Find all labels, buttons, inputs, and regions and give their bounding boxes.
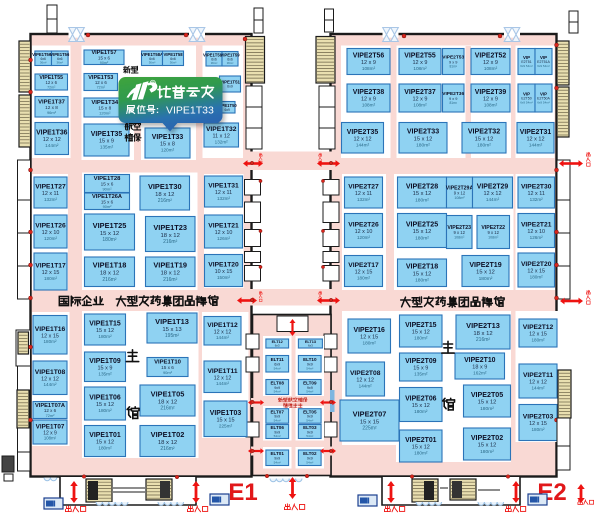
svg-text:VIPE1T01: VIPE1T01 [89,432,121,439]
svg-text:15 x 12: 15 x 12 [100,231,119,237]
svg-text:9 x 12: 9 x 12 [453,230,465,235]
svg-text:VIPE2T32: VIPE2T32 [468,128,500,136]
svg-text:15 x 12: 15 x 12 [478,443,497,449]
svg-text:15 x 12: 15 x 12 [413,229,432,235]
svg-text:VIPE1T33: VIPE1T33 [166,105,214,117]
svg-text:15 x 13: 15 x 13 [162,327,182,333]
svg-text:180m²: 180m² [363,341,377,346]
svg-text:15 x 15: 15 x 15 [360,419,380,425]
svg-text:ELT05: ELT05 [303,409,317,414]
svg-text:120m²: 120m² [44,236,57,241]
svg-text:96m²: 96m² [47,110,57,115]
svg-text:VIPE1T03: VIPE1T03 [210,410,242,417]
svg-text:180m²: 180m² [530,274,543,279]
svg-text:15 x 12: 15 x 12 [413,272,432,278]
svg-text:180m²: 180m² [479,276,493,282]
svg-text:VIPE1T15: VIPE1T15 [89,321,121,328]
svg-text:VIPE2T37: VIPE2T37 [404,89,436,96]
svg-text:VIPE1T27: VIPE1T27 [35,184,66,191]
svg-text:VIPE2T16: VIPE2T16 [353,327,385,334]
svg-text:VIPE2T31: VIPE2T31 [520,129,552,136]
svg-text:6x9 54m²: 6x9 54m² [520,64,533,68]
svg-text:108m²: 108m² [413,66,427,71]
svg-text:108m²: 108m² [488,236,499,240]
svg-text:150m²: 150m² [217,275,230,280]
svg-text:132m²: 132m² [217,196,230,201]
svg-text:72m²: 72m² [46,413,56,418]
svg-text:VIPE2T15: VIPE2T15 [405,322,437,329]
svg-text:54m²: 54m² [274,460,281,464]
svg-text:144m²: 144m² [356,142,370,147]
svg-text:216m²: 216m² [158,198,173,204]
svg-text:180m²: 180m² [102,237,117,243]
svg-text:144m²: 144m² [486,197,500,202]
svg-text:162m²: 162m² [473,371,487,376]
svg-text:54m²: 54m² [274,366,281,370]
svg-text:ELT03: ELT03 [303,425,317,430]
svg-text:54m²: 54m² [274,419,281,423]
svg-text:120m²: 120m² [99,111,111,116]
svg-text:VIPE1T13: VIPE1T13 [155,317,189,326]
svg-text:135m²: 135m² [414,372,428,377]
svg-text:VIPE1T20: VIPE1T20 [208,262,239,269]
svg-text:12 x 6: 12 x 6 [45,80,57,85]
svg-text:108m²: 108m² [484,103,498,108]
svg-text:15 x 12: 15 x 12 [476,270,495,276]
svg-text:ELT11: ELT11 [271,357,285,362]
svg-text:180m²: 180m² [98,446,112,451]
svg-text:54m²: 54m² [306,390,313,394]
svg-text:18 x 12: 18 x 12 [161,233,180,239]
svg-text:VIPE1T05: VIPE1T05 [151,389,185,398]
svg-text:180m²: 180m² [415,278,429,284]
svg-text:180m²: 180m² [414,336,428,341]
svg-text:VIPE1T09: VIPE1T09 [89,358,121,365]
svg-text:VIPE2T17: VIPE2T17 [348,262,379,269]
svg-text:VIPE1T11: VIPE1T11 [207,368,237,375]
svg-text:VIPE1T19: VIPE1T19 [153,261,187,270]
svg-text:VIPE2T13: VIPE2T13 [466,321,500,330]
svg-text:36m²: 36m² [170,60,177,64]
svg-text:120m²: 120m² [357,235,370,240]
svg-text:90m²: 90m² [103,204,113,209]
svg-text:132m²: 132m² [44,197,57,202]
svg-text:15 x 12: 15 x 12 [414,137,433,143]
svg-text:6x9 54m²: 6x9 54m² [520,100,533,104]
svg-text:180m²: 180m² [44,276,57,281]
svg-text:6x9: 6x9 [224,108,230,112]
svg-text:132m²: 132m² [530,197,543,202]
svg-text:135m²: 135m² [98,371,112,376]
svg-text:90m²: 90m² [102,187,112,192]
svg-text:180m²: 180m² [98,334,112,339]
svg-text:ELT08: ELT08 [270,380,284,385]
svg-text:VIPE2T01: VIPE2T01 [405,437,437,444]
svg-text:108m²: 108m² [362,66,376,71]
svg-text:VIPE1T18: VIPE1T18 [93,261,127,270]
svg-text:6x3: 6x3 [275,344,280,348]
svg-text:6x9: 6x9 [227,85,233,89]
svg-text:180m²: 180m² [414,409,428,414]
svg-text:15 x 12: 15 x 12 [475,137,494,143]
svg-text:6x9 54m²: 6x9 54m² [537,64,550,68]
svg-text:VIPE1T25: VIPE1T25 [93,221,127,230]
svg-text:VIPE2T56: VIPE2T56 [353,53,385,60]
svg-text:180m²: 180m² [531,427,544,432]
svg-text:E1: E1 [228,479,257,506]
svg-text:180m²: 180m² [357,275,370,280]
svg-text:72m²: 72m² [97,86,106,90]
svg-text:VIPE2T11: VIPE2T11 [523,372,553,379]
svg-text:VIPE1T16: VIPE1T16 [35,326,66,333]
svg-text:180m²: 180m² [416,143,430,149]
svg-text:135m²: 135m² [100,145,114,150]
svg-text:VIPE1T12: VIPE1T12 [207,322,238,329]
svg-text:VIPE2T25: VIPE2T25 [406,220,438,228]
svg-text:180m²: 180m² [98,408,112,413]
svg-text:VIPE1T32: VIPE1T32 [206,126,237,133]
svg-text:VIPE2T30: VIPE2T30 [521,184,552,191]
svg-text:54m²: 54m² [306,419,313,423]
svg-text:18 x 12: 18 x 12 [473,331,492,337]
svg-text:18 x 12: 18 x 12 [100,271,119,277]
svg-text:VIPE2T09: VIPE2T09 [405,358,437,365]
svg-text:120m²: 120m² [161,148,175,153]
svg-text:VIPE2T28: VIPE2T28 [406,182,438,190]
svg-text:VIPE2T21: VIPE2T21 [521,222,552,229]
svg-text:216m²: 216m² [160,446,175,452]
svg-text:VIPE2T55: VIPE2T55 [404,53,436,60]
svg-text:144m²: 144m² [45,143,59,148]
svg-text:VIPE2T06: VIPE2T06 [405,396,437,403]
svg-text:VIPE1T23: VIPE1T23 [153,223,187,232]
svg-text:VIPE2T39: VIPE2T39 [475,89,507,96]
svg-text:VIPE2T38: VIPE2T38 [353,89,385,96]
svg-text:VIPE1T07: VIPE1T07 [36,423,65,430]
svg-text:18 x 12: 18 x 12 [158,440,177,446]
svg-text:36m²: 36m² [149,60,156,64]
svg-text:VIPE2T08: VIPE2T08 [350,370,381,377]
svg-text:VIPE1T35: VIPE1T35 [91,131,123,138]
svg-text:144m²: 144m² [529,142,543,147]
svg-text:216m²: 216m² [476,337,491,343]
svg-text:15 x 12: 15 x 12 [478,400,497,406]
svg-text:VIPE2T33: VIPE2T33 [407,128,439,136]
svg-text:VIPE1T08: VIPE1T08 [35,369,66,376]
svg-text:VIPE1T17: VIPE1T17 [35,263,66,270]
svg-text:12 x 6: 12 x 6 [95,80,108,85]
svg-text:90m²: 90m² [163,370,173,375]
svg-text:ELT07: ELT07 [270,409,284,414]
svg-text:VIPE1T36: VIPE1T36 [36,130,68,137]
svg-text:VIPE2T35: VIPE2T35 [347,129,379,136]
svg-text:VIPE2T03: VIPE2T03 [523,414,554,421]
svg-text:VIPE2T26: VIPE2T26 [348,222,379,229]
svg-text:VIPE2T12: VIPE2T12 [523,324,554,331]
svg-text:180m²: 180m² [477,143,491,149]
svg-text:180m²: 180m² [480,449,494,455]
svg-text:ELT02: ELT02 [303,451,317,456]
svg-text:54m²: 54m² [306,434,313,438]
svg-text:195m²: 195m² [165,333,180,339]
svg-text:ELT06: ELT06 [270,425,284,430]
svg-text:6x3: 6x3 [308,344,313,348]
svg-text:36m²: 36m² [211,61,218,65]
svg-text:180m²: 180m² [531,337,544,342]
svg-text:VIPE1T26: VIPE1T26 [35,223,66,230]
svg-text:81m²: 81m² [449,101,457,105]
svg-text:54m²: 54m² [306,366,313,370]
svg-text:VIPE2T29: VIPE2T29 [477,184,509,191]
svg-text:132m²: 132m² [215,139,228,144]
svg-text:ELT10: ELT10 [303,357,317,362]
svg-text:VIPE1T06: VIPE1T06 [89,395,121,402]
svg-text:180m²: 180m² [415,235,429,241]
svg-text:18 x 12: 18 x 12 [161,271,180,277]
svg-text:54m²: 54m² [306,460,313,464]
svg-text:36m²: 36m² [40,60,47,64]
svg-text:144m²: 144m² [216,381,229,386]
svg-text:108m²: 108m² [484,66,498,71]
svg-text:VIPE2T19: VIPE2T19 [469,261,501,269]
svg-text:36m²: 36m² [227,61,234,65]
svg-text:VIPE1T30: VIPE1T30 [148,182,182,191]
svg-text:225m²: 225m² [219,423,233,428]
svg-text:VIPE2T20: VIPE2T20 [521,261,552,268]
svg-text:VIPE1T33: VIPE1T33 [152,134,184,141]
svg-text:180m²: 180m² [414,451,428,456]
svg-text:VIPE2T52: VIPE2T52 [475,53,507,60]
svg-text:108m²: 108m² [454,236,465,240]
svg-text:216m²: 216m² [160,406,175,412]
svg-text:216m²: 216m² [163,277,178,283]
svg-text:81m²: 81m² [449,64,457,68]
svg-text:54m²: 54m² [274,390,281,394]
svg-text:36m²: 36m² [57,60,64,64]
svg-text:132m²: 132m² [357,197,370,202]
svg-text:18 x 12: 18 x 12 [158,399,177,405]
svg-text:108m²: 108m² [44,436,57,441]
svg-text:VIPE2T05: VIPE2T05 [471,391,503,399]
svg-text:VIPE2T18: VIPE2T18 [406,263,438,271]
svg-text:15 x 6: 15 x 6 [98,55,111,60]
svg-text:VIPE2T27: VIPE2T27 [348,184,379,191]
svg-text:9 x 12: 9 x 12 [454,191,466,196]
svg-text:216m²: 216m² [102,277,117,283]
svg-text:108m²: 108m² [413,103,427,108]
svg-text:18 x 12: 18 x 12 [155,192,174,198]
svg-text:144m²: 144m² [216,335,229,340]
svg-text:VIPE1T02: VIPE1T02 [151,430,185,439]
svg-text:VIPE1T31: VIPE1T31 [208,183,239,190]
svg-text:108m²: 108m² [454,196,465,200]
svg-text:VIPE2T10: VIPE2T10 [464,357,496,364]
svg-text:180m²: 180m² [480,406,494,412]
svg-text:9 x 12: 9 x 12 [487,230,499,235]
svg-text:90m²: 90m² [100,61,109,65]
svg-text:VIPE2T02: VIPE2T02 [471,434,503,442]
svg-text::: : [156,105,159,115]
svg-text:6x9 54m²: 6x9 54m² [537,100,550,104]
svg-text:54m²: 54m² [274,434,281,438]
svg-text:VIPE2T07: VIPE2T07 [353,409,387,418]
svg-text:ELT09: ELT09 [303,380,317,385]
svg-text:180m²: 180m² [415,197,429,203]
svg-text:108m²: 108m² [362,103,376,108]
svg-text:225m²: 225m² [362,426,377,432]
svg-text:126m²: 126m² [530,235,543,240]
svg-text:72m²: 72m² [47,86,56,90]
svg-text:216m²: 216m² [163,239,178,245]
svg-text:180m²: 180m² [43,339,56,344]
svg-text:15 x 12: 15 x 12 [413,191,432,197]
svg-text:144m²: 144m² [531,385,544,390]
svg-text:VIPE1T21: VIPE1T21 [208,223,239,230]
svg-text:ELT01: ELT01 [270,451,284,456]
svg-text:144m²: 144m² [359,383,372,388]
svg-text:144m²: 144m² [43,382,56,387]
svg-text:126m²: 126m² [217,236,230,241]
